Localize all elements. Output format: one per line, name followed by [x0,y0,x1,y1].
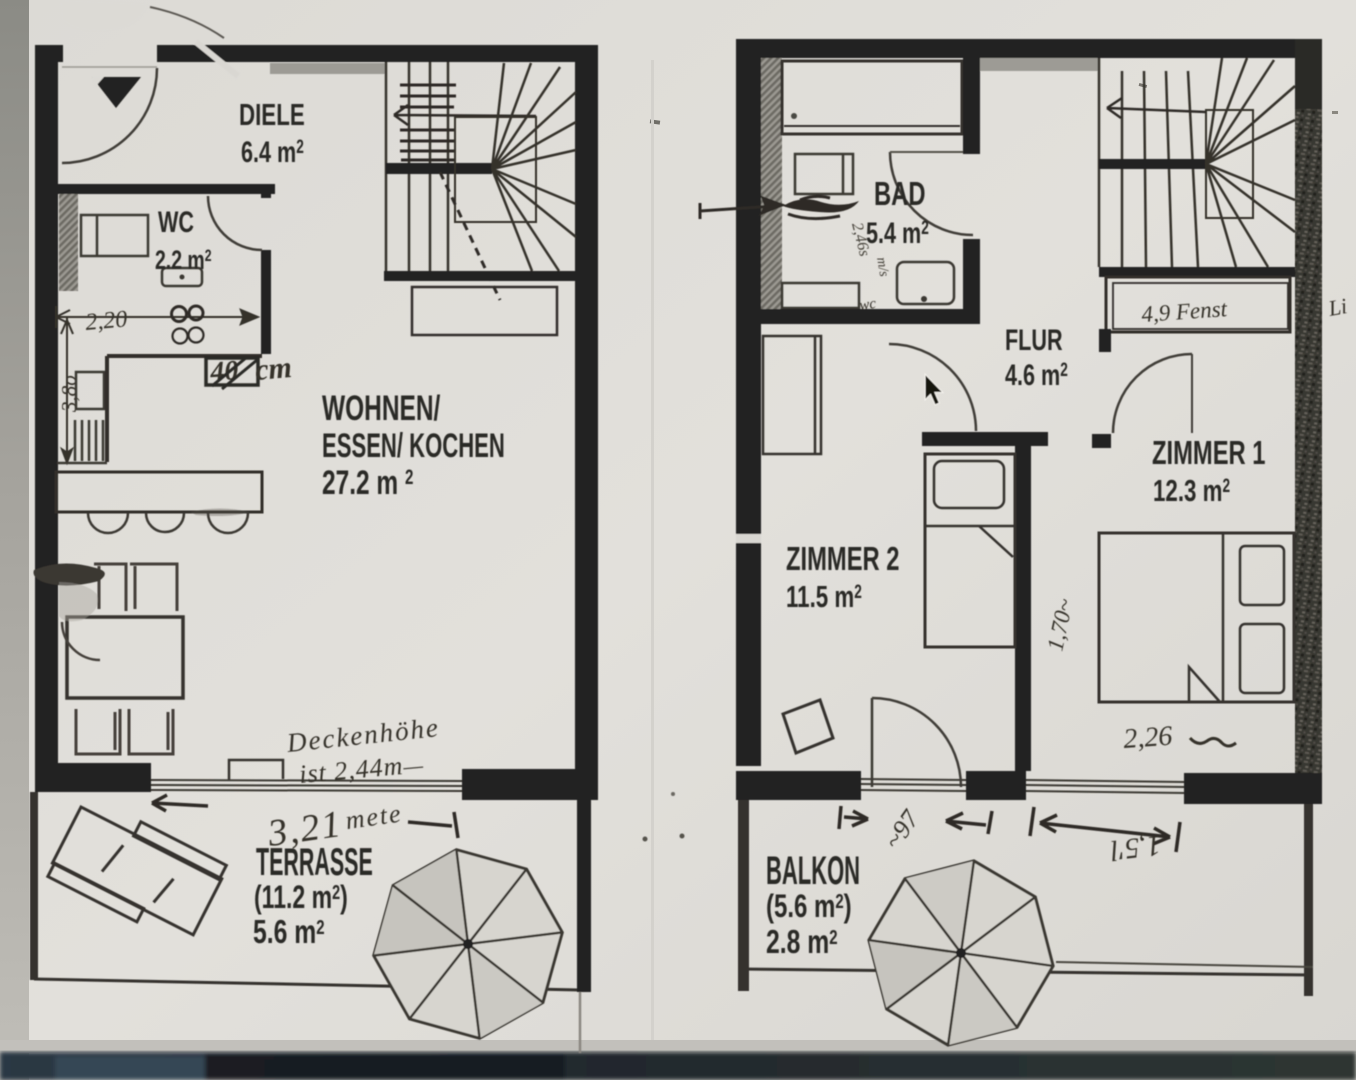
svg-text:BALKON: BALKON [766,848,860,893]
svg-text:DIELE: DIELE [239,97,305,131]
svg-text:WC: WC [158,204,194,238]
svg-text:ZIMMER 2: ZIMMER 2 [786,541,900,578]
svg-text:BAD: BAD [874,176,925,213]
svg-text:ESSEN/ KOCHEN: ESSEN/ KOCHEN [322,427,505,465]
svg-text:cm: cm [254,351,293,387]
svg-text:2,20: 2,20 [84,306,128,336]
svg-text:12.3 m2: 12.3 m2 [1153,473,1230,507]
svg-text:27.2 m 2: 27.2 m 2 [322,464,413,502]
svg-text:2.8 m2: 2.8 m2 [766,925,838,961]
svg-text:4.6 m2: 4.6 m2 [1005,357,1068,391]
svg-text:FLUR: FLUR [1005,322,1063,356]
svg-text:11.5 m2: 11.5 m2 [786,579,862,613]
svg-text:6.4 m2: 6.4 m2 [241,134,304,168]
svg-text:5.4 m2: 5.4 m2 [866,215,929,249]
svg-text:1,5′l: 1,5′l [1109,829,1163,866]
svg-text:40: 40 [208,355,239,388]
svg-text:2,26: 2,26 [1122,721,1173,755]
svg-text:5.6 m2: 5.6 m2 [253,915,325,951]
svg-text:WOHNEN/: WOHNEN/ [322,390,441,428]
svg-text:ZIMMER 1: ZIMMER 1 [1152,435,1266,472]
svg-text:TERRASSE: TERRASSE [256,840,373,883]
svg-text:2.2 m2: 2.2 m2 [155,245,212,275]
svg-text:wc: wc [858,296,877,314]
svg-text:3,8o: 3,8o [57,375,81,413]
